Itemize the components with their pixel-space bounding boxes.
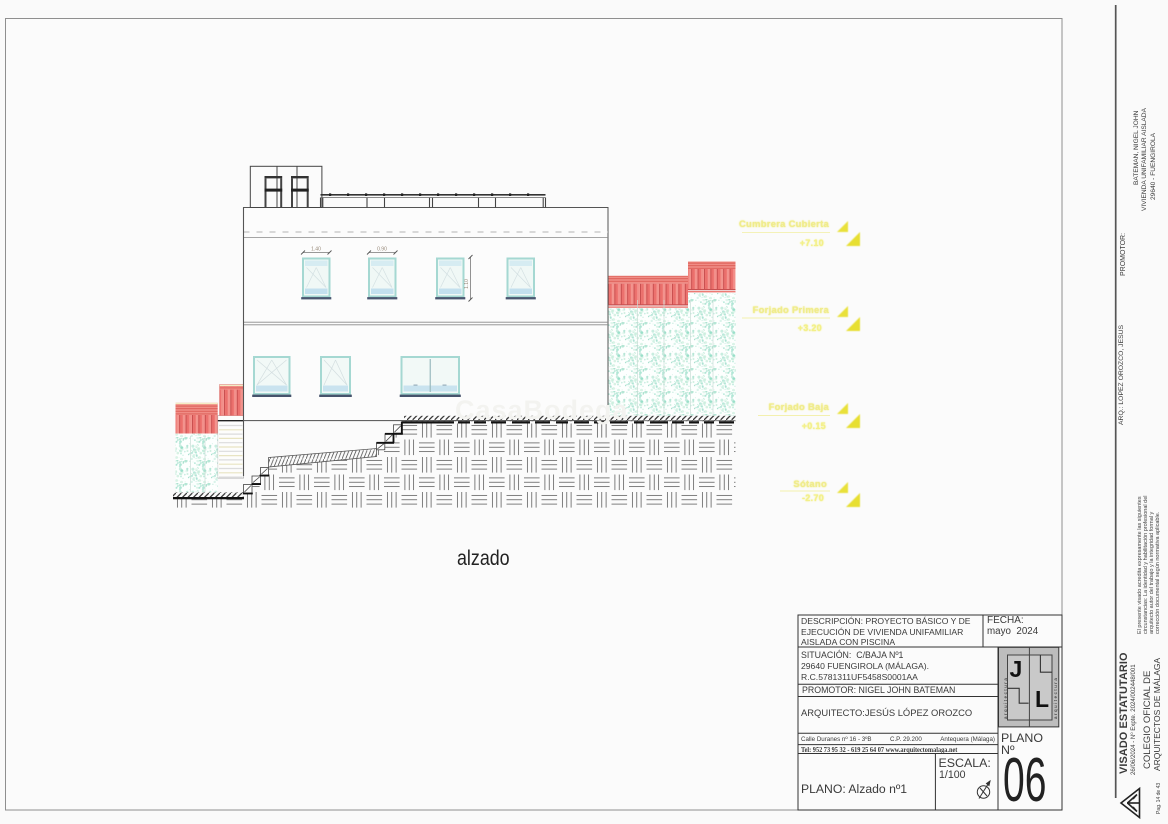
- svg-text:1.10: 1.10: [464, 279, 470, 289]
- svg-text:0.90: 0.90: [377, 247, 387, 253]
- svg-text:1.40: 1.40: [311, 247, 321, 253]
- svg-text:CasaBodega: CasaBodega: [455, 395, 629, 425]
